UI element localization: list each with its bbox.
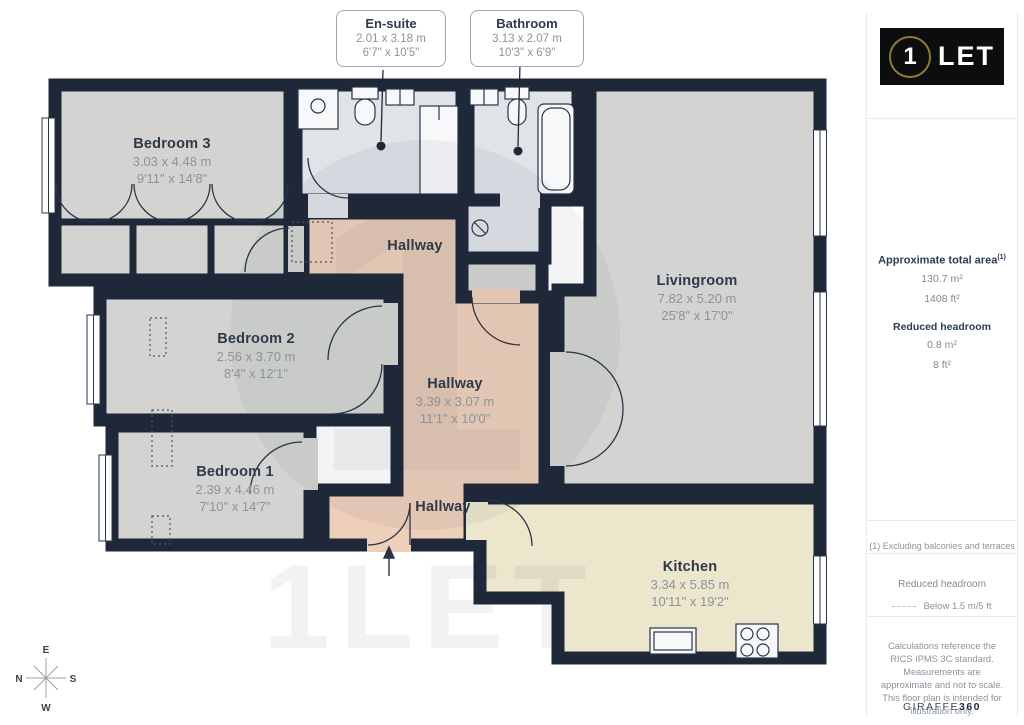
callout-bathroom-dims-m: 3.13 x 2.07 m	[478, 32, 576, 46]
legend-title: Reduced headroom	[867, 579, 1017, 590]
total-area-footnote-marker: (1)	[997, 254, 1006, 261]
floorplan-page: 1 1LET E S	[0, 0, 1024, 725]
area-footnote: (1) Excluding balconies and terraces	[867, 541, 1017, 551]
legend-row: Below 1.5 m/5 ft	[867, 601, 1017, 612]
compass-w: W	[41, 703, 51, 714]
logo-number: 1	[903, 43, 916, 71]
legend-label: Below 1.5 m/5 ft	[923, 601, 991, 612]
reduced-headroom-ft2: 8 ft²	[867, 358, 1017, 373]
brand-logo: 1 LET	[880, 28, 1004, 85]
compass-e: E	[43, 645, 50, 656]
floorplan: 1 1LET E S	[0, 0, 868, 725]
callout-ensuite-dims-m: 2.01 x 3.18 m	[344, 32, 438, 46]
watermark-one: 1	[309, 108, 531, 555]
area-summary: Approximate total area(1) 130.7 m² 1408 …	[867, 254, 1017, 373]
callout-bathroom: Bathroom 3.13 x 2.07 m 10'3" x 6'9"	[470, 10, 584, 67]
dashed-line-icon	[892, 606, 916, 607]
callout-ensuite: En-suite 2.01 x 3.18 m 6'7" x 10'5"	[336, 10, 446, 67]
reduced-headroom-title: Reduced headroom	[867, 321, 1017, 333]
sidebar: 1 LET Approximate total area(1) 130.7 m²…	[866, 13, 1018, 717]
compass: E S W N	[15, 645, 76, 714]
callout-ensuite-name: En-suite	[344, 16, 438, 32]
toilet-ensuite-tank	[352, 87, 378, 99]
total-area-m2: 130.7 m²	[867, 272, 1017, 287]
total-area-ft2: 1408 ft²	[867, 292, 1017, 307]
giraffe360-brand: GIRAFFE360	[867, 701, 1017, 713]
compass-s: S	[70, 674, 77, 685]
sidebar-separator-3	[867, 553, 1017, 554]
callout-bathroom-name: Bathroom	[478, 16, 576, 32]
callout-bathroom-dims-ft: 10'3" x 6'9"	[478, 46, 576, 60]
sidebar-separator-1	[867, 118, 1017, 119]
sidebar-separator-2	[867, 520, 1017, 521]
total-area-title: Approximate total area(1)	[867, 254, 1017, 267]
logo-text: LET	[938, 41, 995, 72]
callout-ensuite-dims-ft: 6'7" x 10'5"	[344, 46, 438, 60]
floorplan-drawing: 1 1LET E S	[0, 0, 868, 725]
toilet-bathroom-tank	[505, 87, 529, 99]
reduced-headroom-m2: 0.8 m²	[867, 338, 1017, 353]
logo-circle-one: 1	[889, 36, 931, 78]
compass-n: N	[15, 674, 22, 685]
sidebar-separator-4	[867, 616, 1017, 617]
watermark-text: 1LET	[263, 540, 596, 674]
